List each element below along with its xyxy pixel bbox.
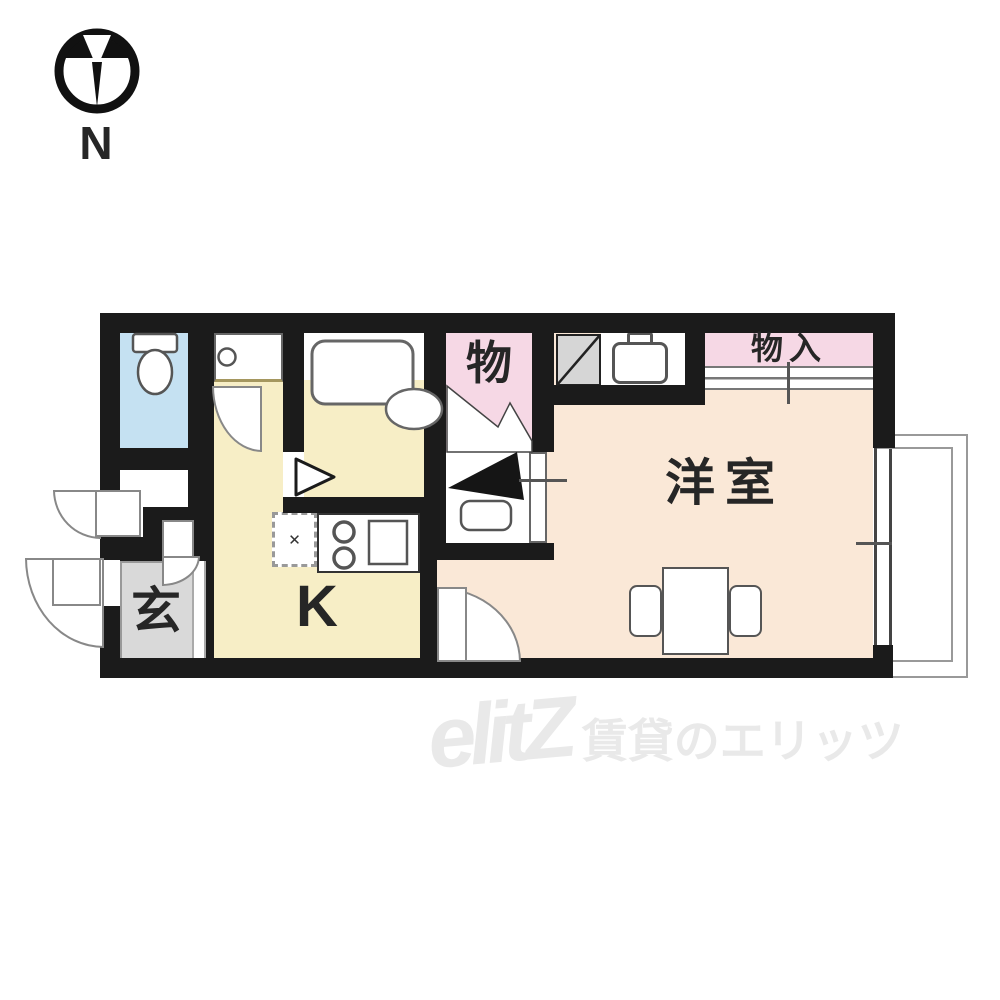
wall-washbasin-right bbox=[283, 313, 304, 455]
washing-machine-lid-icon bbox=[627, 332, 653, 345]
door-arc bbox=[53, 490, 101, 539]
balcony-outline-inner bbox=[877, 447, 953, 662]
entrance-label: 玄 bbox=[120, 586, 192, 636]
window-tick bbox=[856, 542, 892, 545]
western-room-label: 洋室 bbox=[640, 458, 810, 508]
wall-entrance-strip bbox=[206, 525, 214, 658]
wall-storage-right bbox=[532, 313, 554, 452]
refrigerator-marker-glyph: ✕ bbox=[288, 531, 301, 549]
wall-storage-left bbox=[424, 313, 446, 560]
storage-door-tick bbox=[519, 479, 567, 482]
wall-under-toilet bbox=[100, 448, 214, 470]
kitchen-label: K bbox=[214, 578, 420, 636]
washbasin-counter bbox=[214, 333, 283, 382]
wall-right-corner bbox=[873, 645, 893, 660]
wall-toilet-right bbox=[188, 313, 214, 470]
compass-icon bbox=[44, 18, 150, 124]
room-door-leaf bbox=[437, 587, 467, 662]
wall-laundry-right bbox=[685, 313, 705, 405]
entrance-step-strip bbox=[192, 561, 206, 658]
chair-right-icon bbox=[729, 585, 762, 637]
floorplan-canvas: N ✕ bbox=[0, 0, 1000, 1000]
storage-lower-floor bbox=[446, 452, 529, 543]
wall-storage-bottom bbox=[424, 543, 554, 560]
storage-hinged-door bbox=[529, 452, 547, 543]
chair-left-icon bbox=[629, 585, 662, 637]
wall-bath-bottom bbox=[283, 497, 437, 513]
kitchen-counter bbox=[317, 513, 420, 573]
entry-door-leaf bbox=[52, 558, 101, 606]
closet-label: 物入 bbox=[705, 332, 873, 364]
wall-right-top bbox=[873, 313, 895, 448]
toilet-floor bbox=[120, 333, 188, 448]
closet-door-tick bbox=[787, 362, 790, 404]
shelf-diagonal-box bbox=[556, 334, 601, 386]
washing-machine-icon bbox=[612, 342, 668, 384]
watermark-caption: 賃貸のエリッツ bbox=[582, 718, 904, 764]
watermark-logo: elitZ bbox=[425, 684, 574, 782]
storage-label: 物 bbox=[446, 340, 532, 386]
bath-door-opening bbox=[283, 452, 304, 497]
wall-laundry-bottom bbox=[554, 385, 705, 405]
compass-north-label: N bbox=[58, 120, 134, 166]
door-leaf bbox=[95, 490, 141, 537]
dining-table-icon bbox=[662, 567, 729, 655]
refrigerator-space-marker: ✕ bbox=[272, 512, 317, 567]
watermark: elitZ 賃貸のエリッツ bbox=[428, 690, 904, 776]
